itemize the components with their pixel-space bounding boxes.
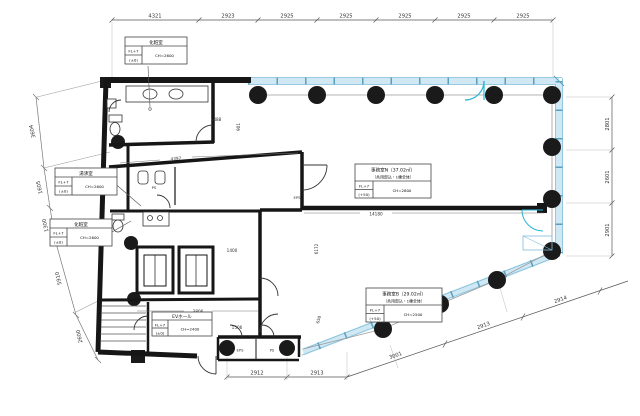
wash-basin — [143, 89, 157, 99]
room-label-powder-top: 化粧室 FL+7 (±0) CH=2600 — [125, 37, 187, 64]
dim-right-1: 2601 — [605, 170, 611, 183]
room-fl-sub: (±0) — [156, 331, 165, 336]
dim-core-diag: 4397 — [170, 156, 181, 162]
dim-1488: 1488 — [211, 117, 222, 122]
urinal — [155, 171, 165, 184]
interior-dimensions: 14180 4397 3806 1400 1506 901 1488 6172 … — [120, 117, 544, 336]
room-subtitle: （共用部込・1棟全体） — [372, 175, 413, 180]
room-subtitle: （共用部込・1棟全体） — [383, 299, 424, 304]
entrance-doors — [465, 81, 552, 250]
room-fl-sub: (+50) — [369, 316, 381, 321]
dim-top-2: 2925 — [280, 14, 293, 20]
room-fl: FL+7 — [359, 184, 370, 189]
room-fl: FL+7 — [155, 323, 166, 328]
room-fl: FL+7 — [53, 231, 64, 236]
dim-partition: 14180 — [369, 212, 383, 217]
room-fl: FL+7 — [58, 180, 69, 185]
dim-top-3: 2925 — [339, 14, 352, 20]
room-label-kitchenette: 湯沸室 FL+7 (±0) CH=2600 — [55, 168, 117, 195]
right-dimension-labels: 2801 2601 2901 — [605, 117, 611, 236]
dim-diag-1: 2913 — [476, 321, 490, 331]
room-ch: CH=2400 — [181, 327, 200, 332]
label-ps-strip: PS — [270, 348, 275, 353]
room-ch: CH=2500 — [404, 312, 423, 317]
dim-bottom-1: 2913 — [310, 371, 323, 377]
room-ch: CH=2800 — [393, 188, 412, 193]
dim-diag-2: 2914 — [553, 295, 568, 305]
room-title: 化粧室 — [149, 39, 163, 46]
floor-plan-canvas: 3604 1605 1300 5910 2600 4321 2923 2925 … — [0, 0, 640, 416]
dim-left-4: 2600 — [76, 329, 85, 343]
dim-top-6: 2925 — [516, 14, 529, 20]
top-dimension-labels: 4321 2923 2925 2925 2925 2925 2925 — [148, 14, 529, 20]
toilet-bowl — [113, 220, 123, 232]
room-title: 事務室N（37.02㎡） — [371, 167, 415, 174]
room-fl-sub: (+50) — [358, 192, 370, 197]
vanity-counter — [126, 86, 208, 102]
dim-6172: 6172 — [314, 243, 319, 254]
room-title: 湯沸室 — [79, 170, 93, 177]
dim-650: 650 — [315, 315, 322, 324]
dim-1400: 1400 — [227, 248, 238, 253]
dim-top-5: 2925 — [457, 14, 470, 20]
partition-end-block — [537, 203, 547, 213]
dim-right-2: 2901 — [605, 223, 611, 236]
room-fl: FL+7 — [370, 308, 381, 313]
room-label-powder-left: 化粧室 FL+7 (±0) CH=2600 — [50, 219, 112, 246]
dim-top-4: 2925 — [398, 14, 411, 20]
room-fl-sub: (±0) — [54, 240, 63, 245]
room-ch: CH=2600 — [80, 235, 99, 240]
elevator-shafts — [137, 247, 213, 293]
floor-plan-drawing: 3604 1605 1300 5910 2600 4321 2923 2925 … — [0, 0, 640, 416]
room-title: EVホール — [172, 314, 192, 320]
wash-basin — [169, 89, 183, 99]
room-label-office-n: 事務室N（37.02㎡） （共用部込・1棟全体） FL+7 (+50) CH=2… — [355, 164, 431, 198]
toilet-tank — [109, 115, 122, 122]
kitchenette-sink — [143, 212, 169, 226]
dim-top-1: 2923 — [221, 14, 234, 20]
room-fl: FL+7 — [128, 49, 139, 54]
dim-901: 901 — [236, 123, 241, 131]
bottom-dimension-chain — [225, 352, 350, 380]
label-eps-strip: EPS — [236, 348, 244, 353]
toilet-bowl — [110, 123, 120, 136]
toilet-tank — [112, 214, 124, 220]
dim-diag-0: 3001 — [388, 351, 402, 361]
dim-left-3: 5910 — [55, 271, 64, 285]
room-fl-sub: (±0) — [129, 58, 138, 63]
label-eps-core: EPS — [293, 195, 301, 200]
room-label-office-b: 事務室B（29.02㎡） （共用部込・1棟全体） FL+7 (+50) CH=2… — [366, 288, 442, 322]
dim-right-0: 2801 — [605, 117, 611, 130]
interior-doors — [109, 100, 327, 374]
room-title: 化粧室 — [74, 221, 88, 228]
room-label-ev-hall: EVホール FL+7 (±0) CH=2400 — [152, 312, 212, 336]
room-fl-sub: (±0) — [59, 189, 68, 194]
label-ps-core: PS — [152, 185, 157, 190]
dim-left-1: 1605 — [36, 180, 45, 194]
dim-1506: 1506 — [232, 325, 243, 330]
dim-left-2: 1300 — [42, 218, 51, 232]
dim-top-0: 4321 — [148, 14, 161, 20]
room-title: 事務室B（29.02㎡） — [382, 291, 426, 298]
dim-bottom-0: 2912 — [250, 371, 263, 377]
urinal — [138, 171, 148, 184]
dim-left-0: 3604 — [28, 123, 37, 138]
room-ch: CH=2600 — [85, 184, 104, 189]
hand-sink — [107, 99, 116, 108]
room-ch: CH=2600 — [155, 53, 174, 58]
